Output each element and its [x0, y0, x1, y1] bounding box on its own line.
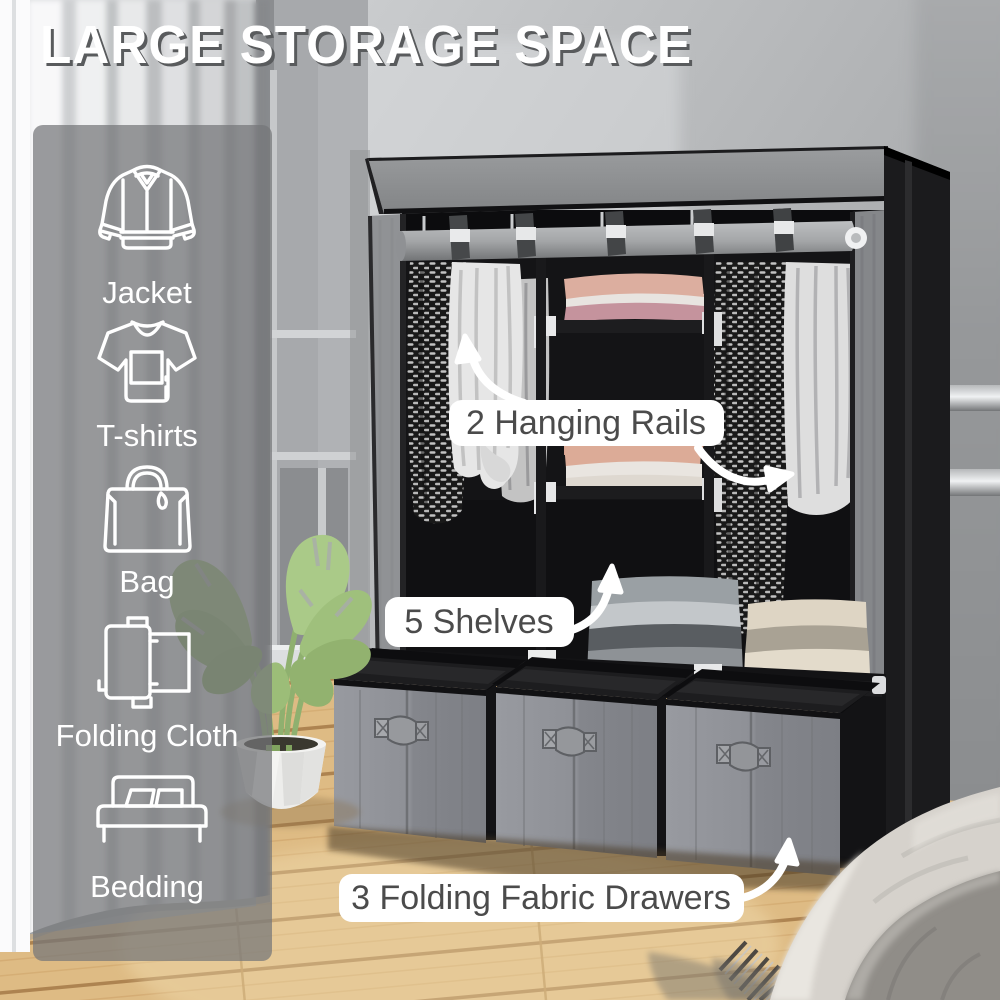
svg-text:3 Folding Fabric Drawers: 3 Folding Fabric Drawers [351, 879, 731, 917]
svg-text:T-shirts: T-shirts [96, 418, 198, 453]
svg-text:Bedding: Bedding [90, 869, 204, 904]
svg-text:Jacket: Jacket [102, 275, 192, 310]
svg-text:Folding Cloth: Folding Cloth [56, 718, 239, 753]
svg-text:5 Shelves: 5 Shelves [404, 603, 553, 641]
svg-text:2 Hanging Rails: 2 Hanging Rails [466, 404, 706, 442]
svg-text:LARGE STORAGE SPACE: LARGE STORAGE SPACE [40, 15, 692, 75]
svg-text:Bag: Bag [119, 564, 174, 599]
